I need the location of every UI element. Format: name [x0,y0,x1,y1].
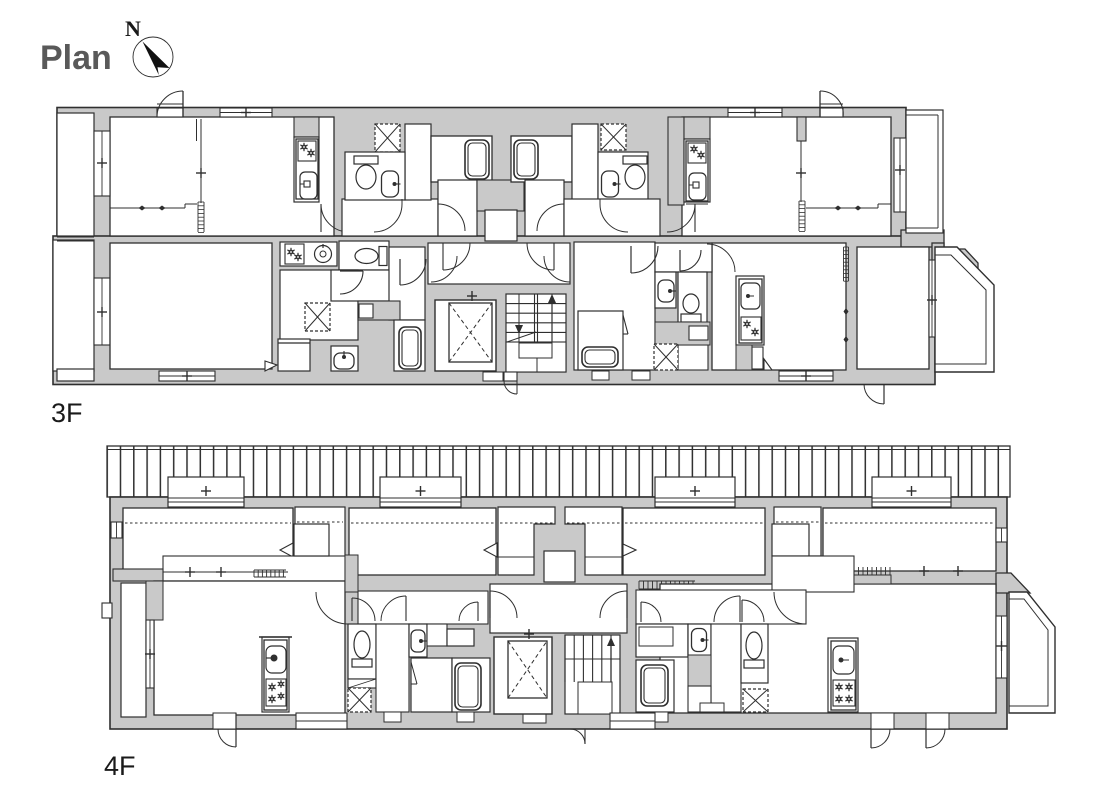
svg-text:3F: 3F [51,398,83,428]
svg-text:Plan: Plan [40,39,112,77]
svg-text:4F: 4F [104,751,136,781]
svg-text:N: N [125,16,141,41]
